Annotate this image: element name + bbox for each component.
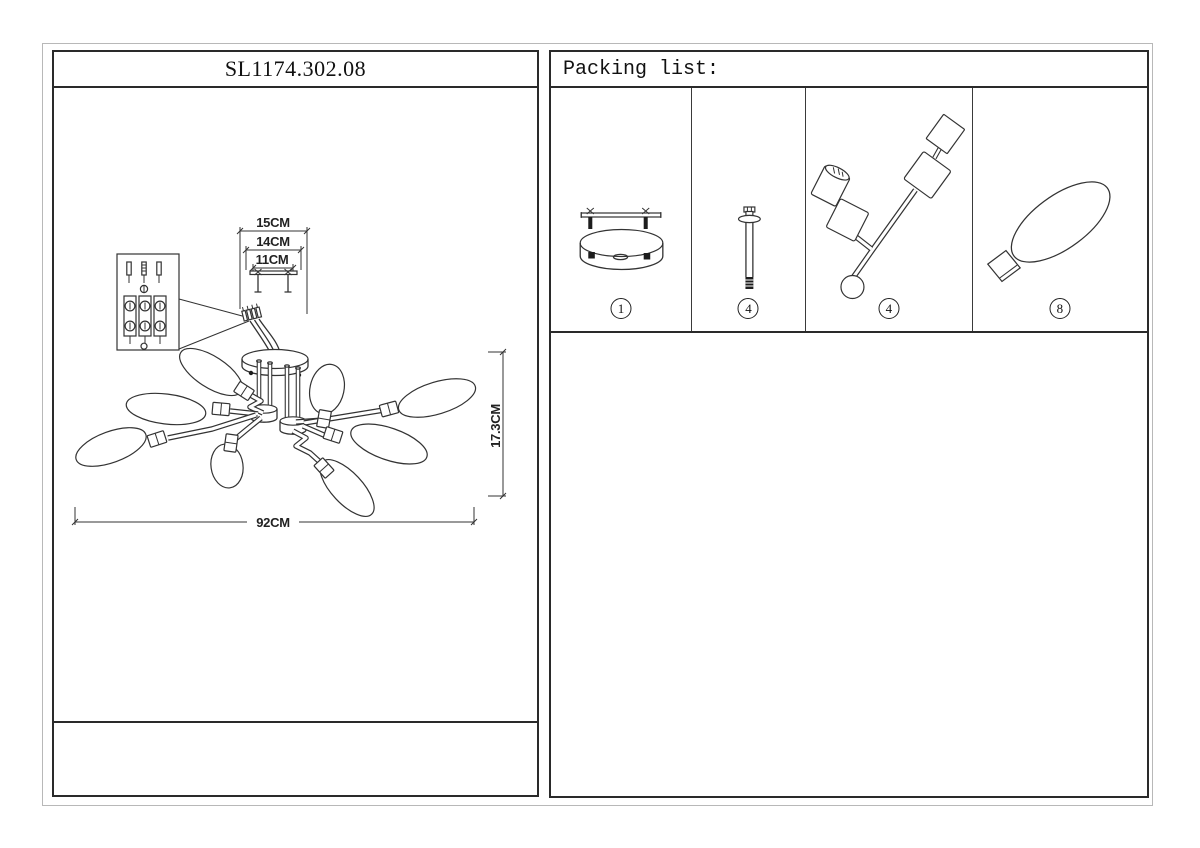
packing-panel: Packing list: 1 — [549, 50, 1149, 798]
width-dimension: 92CM — [72, 507, 477, 530]
dim-width-label: 92CM — [256, 515, 289, 530]
qty-badge: 8 — [1049, 298, 1070, 319]
packing-item-screw: 4 — [691, 88, 805, 331]
drawing-panel: SL1174.302.08 15CM 14CM 11CM — [52, 50, 539, 797]
dim-height-label: 17.3CM — [488, 404, 503, 448]
left-panel-footer — [54, 721, 537, 795]
qty-number: 8 — [1057, 301, 1064, 317]
packing-list-title: Packing list: — [563, 58, 719, 81]
packing-list-bar: Packing list: — [551, 52, 1147, 88]
packing-item-canopy: 1 — [551, 88, 691, 331]
dim-bracket-inner-label: 11CM — [256, 252, 289, 267]
packing-items-row: 1 4 — [551, 88, 1147, 333]
drawing-area: 15CM 14CM 11CM — [54, 88, 537, 721]
qty-badge: 1 — [611, 298, 632, 319]
swivel-arm-icon — [806, 88, 972, 331]
bulb-icon — [973, 88, 1147, 331]
model-number: SL1174.302.08 — [225, 56, 366, 82]
packing-item-arm: 4 — [805, 88, 972, 331]
wire-connector — [241, 303, 280, 354]
dim-bracket-outer-label: 15CM — [256, 215, 289, 230]
qty-badge: 4 — [738, 298, 759, 319]
terminal-block-detail — [117, 254, 179, 350]
mounting-screw-icon — [692, 88, 805, 331]
packing-item-bulb: 8 — [972, 88, 1147, 331]
qty-number: 4 — [886, 301, 893, 317]
qty-number: 4 — [745, 301, 752, 317]
instruction-sheet: SL1174.302.08 15CM 14CM 11CM — [0, 0, 1200, 848]
fixture-drawing: 15CM 14CM 11CM — [54, 88, 537, 721]
leader-lines — [179, 299, 249, 349]
height-dimension: 17.3CM — [488, 349, 506, 499]
qty-number: 1 — [618, 301, 625, 317]
model-number-bar: SL1174.302.08 — [54, 52, 537, 88]
lamp-arms — [168, 393, 384, 463]
mount-dimension-detail: 15CM 14CM 11CM — [237, 215, 310, 314]
dim-bracket-mid-label: 14CM — [256, 234, 289, 249]
qty-badge: 4 — [878, 298, 899, 319]
ceiling-mount-plate-icon — [551, 88, 691, 331]
